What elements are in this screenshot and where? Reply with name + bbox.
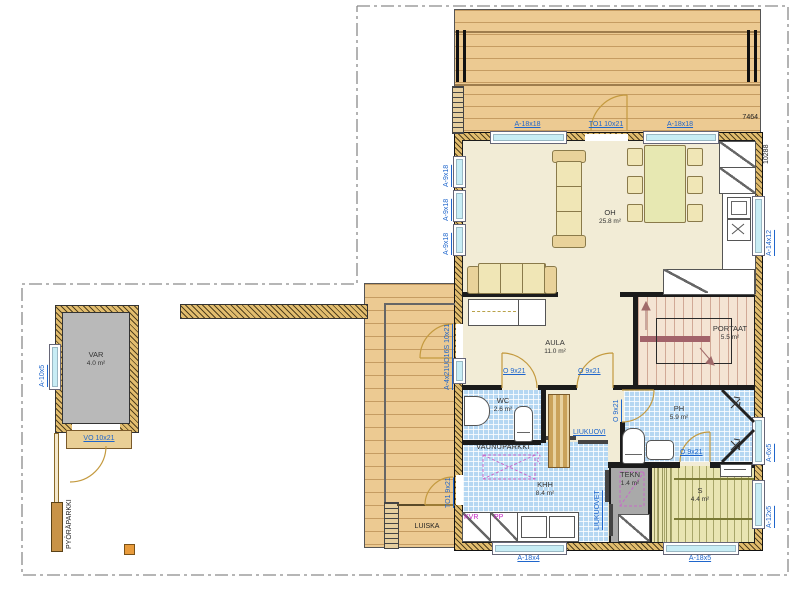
room-name: PORTAAT (700, 324, 760, 334)
window-top-left (490, 131, 567, 144)
sauna-bench-line (674, 518, 754, 520)
terrace-post (747, 30, 750, 82)
room-area: 25.8 m² (578, 218, 642, 226)
dryer-label: KVR (464, 514, 478, 521)
entry-door-opening (456, 324, 463, 358)
bike-parking-label: PYÖRÄPARKKI (66, 483, 74, 549)
room-area: 11.0 m² (525, 348, 585, 356)
window-label: A-18x18 (490, 121, 565, 129)
room-name: KHH (515, 480, 575, 490)
room-name: VAR (66, 350, 126, 360)
room-label-var: VAR 4.0 m² (66, 350, 126, 368)
room-area: 1.4 m² (600, 480, 660, 488)
wall-stairs-west (633, 292, 638, 385)
sliding-door-leaf (578, 440, 608, 444)
room-area: 4.4 m² (670, 496, 730, 504)
window-left-2 (453, 190, 466, 222)
tekn-unit (618, 514, 650, 542)
window-label: A-12x5 (766, 482, 774, 528)
sofa-horizontal (478, 263, 546, 294)
terrace-edge-line (455, 84, 760, 86)
entrance-steps (384, 502, 399, 549)
entry-sidelight (453, 358, 466, 384)
room-area: 2.6 m² (473, 406, 533, 414)
storage-door-swing (70, 446, 106, 482)
window-label: A-6x5 (766, 420, 774, 462)
wardrobe (468, 299, 520, 326)
stroller-parking-label: VAUNUPARKKI (463, 444, 543, 452)
window-label: A-14x12 (766, 200, 774, 256)
kitchen-tall-cabinet (719, 141, 756, 168)
window-sauna-bottom (663, 542, 739, 555)
entrance-deck-line-h (384, 303, 455, 305)
window-top-right (643, 131, 719, 144)
dimension-depth: 10288 (763, 122, 771, 164)
window-label: A-18x5 (663, 555, 737, 563)
window-khh-bottom (492, 542, 567, 555)
entrance-deck-left (365, 284, 455, 547)
terrace-rail-line (455, 31, 760, 33)
window-sauna-right (752, 480, 765, 529)
storage-door: VO 10x21 (66, 430, 132, 449)
window-label: A-9x18 (443, 155, 451, 187)
ph-toilet (622, 428, 645, 464)
room-label-wc: WC2.6 m² (473, 396, 533, 414)
dining-chair (687, 176, 703, 194)
room-label-aula: AULA11.0 m² (525, 338, 585, 356)
entrance-deck-line-v (384, 303, 386, 503)
room-label-sauna: S4.4 m² (670, 486, 730, 504)
wall-aula-south-3 (613, 385, 754, 390)
room-label-tekn: TEKN1.4 m² (600, 470, 660, 488)
ph-sink (646, 440, 674, 460)
entry-door-label: A-4x21UO16S 10x21 (444, 312, 452, 390)
kitchen-tall-cabinet (719, 167, 756, 194)
room-label-oh: OH25.8 m² (578, 208, 642, 226)
door-label-corridor: O 9x21 (578, 368, 601, 376)
room-name: WC (473, 396, 533, 406)
room-name: S (670, 486, 730, 496)
terrace-step (452, 86, 464, 134)
sliding-doors-leaf (609, 504, 613, 536)
corridor-bench (548, 394, 570, 468)
room-area: 4.0 m² (66, 360, 126, 368)
storage-window-label: A-10x5 (39, 347, 47, 387)
window-left-3 (453, 224, 466, 256)
sauna-heater (720, 464, 752, 477)
kitchen-sink (727, 197, 751, 219)
room-label-portaat: PORTAAT5.5 m² (700, 324, 760, 342)
room-area: 8.4 m² (515, 490, 575, 498)
marker-square (124, 544, 135, 555)
room-label-khh: KHH8.4 m² (515, 480, 575, 498)
door-label: TO1 10x21 (578, 121, 634, 129)
window-kitchen (752, 196, 765, 256)
terrace-door-opening (585, 134, 628, 141)
door-label-wc: O 9x21 (503, 368, 526, 376)
terrace-deck-top (455, 10, 760, 133)
door-label-ph: O 9x21 (613, 390, 621, 422)
ramp-label: LUISKA (402, 523, 452, 531)
sauna-bench-line (674, 478, 754, 480)
floor-plan-canvas: LUISKA VAR 4.0 m² A-10x5 VO 10x21 PYÖRÄP… (0, 0, 800, 600)
dining-chair (687, 204, 703, 222)
sliding-door-label: LIUKUOVI (573, 429, 606, 437)
dimension-width: 7464 (733, 114, 758, 122)
bike-rack (51, 502, 63, 552)
window-left-1 (453, 156, 466, 188)
room-name: PH (649, 404, 709, 414)
left-lower-door-label: TO1 9x21 (445, 470, 453, 508)
room-name: TEKN (600, 470, 660, 480)
room-label-ph: PH5.9 m² (649, 404, 709, 422)
window-label: A-9x18 (443, 189, 451, 221)
dining-chair (687, 148, 703, 166)
wardrobe (518, 299, 546, 326)
door-label-sauna: O 9x21 (680, 449, 703, 457)
bike-rack-line (54, 433, 59, 505)
sofa-armrest (544, 266, 557, 294)
dining-chair (627, 148, 643, 166)
wall-aula-south-1 (463, 385, 502, 390)
kitchen-stove (727, 219, 751, 241)
room-name: OH (578, 208, 642, 218)
sofa-armrest (552, 235, 586, 248)
room-area: 5.9 m² (649, 414, 709, 422)
khh-counter-basin (521, 516, 547, 538)
terrace-post (754, 30, 757, 82)
dining-table (644, 145, 686, 223)
kitchen-base-cabinet-door (663, 269, 708, 293)
fence-wall (180, 304, 368, 319)
window-ph (752, 417, 765, 465)
window-label: A-9x18 (443, 223, 451, 255)
terrace-post (456, 30, 459, 82)
window-label: A-18x18 (643, 121, 717, 129)
washer-label: PP (494, 514, 503, 521)
window-label: A-18x4 (492, 555, 565, 563)
storage-door-label: VO 10x21 (67, 435, 131, 443)
left-lower-door-opening (456, 475, 463, 505)
khh-counter-basin (549, 516, 575, 538)
dining-chair (627, 176, 643, 194)
room-name: AULA (525, 338, 585, 348)
terrace-post (463, 30, 466, 82)
storage-window (49, 344, 61, 390)
room-area: 5.5 m² (700, 334, 760, 342)
